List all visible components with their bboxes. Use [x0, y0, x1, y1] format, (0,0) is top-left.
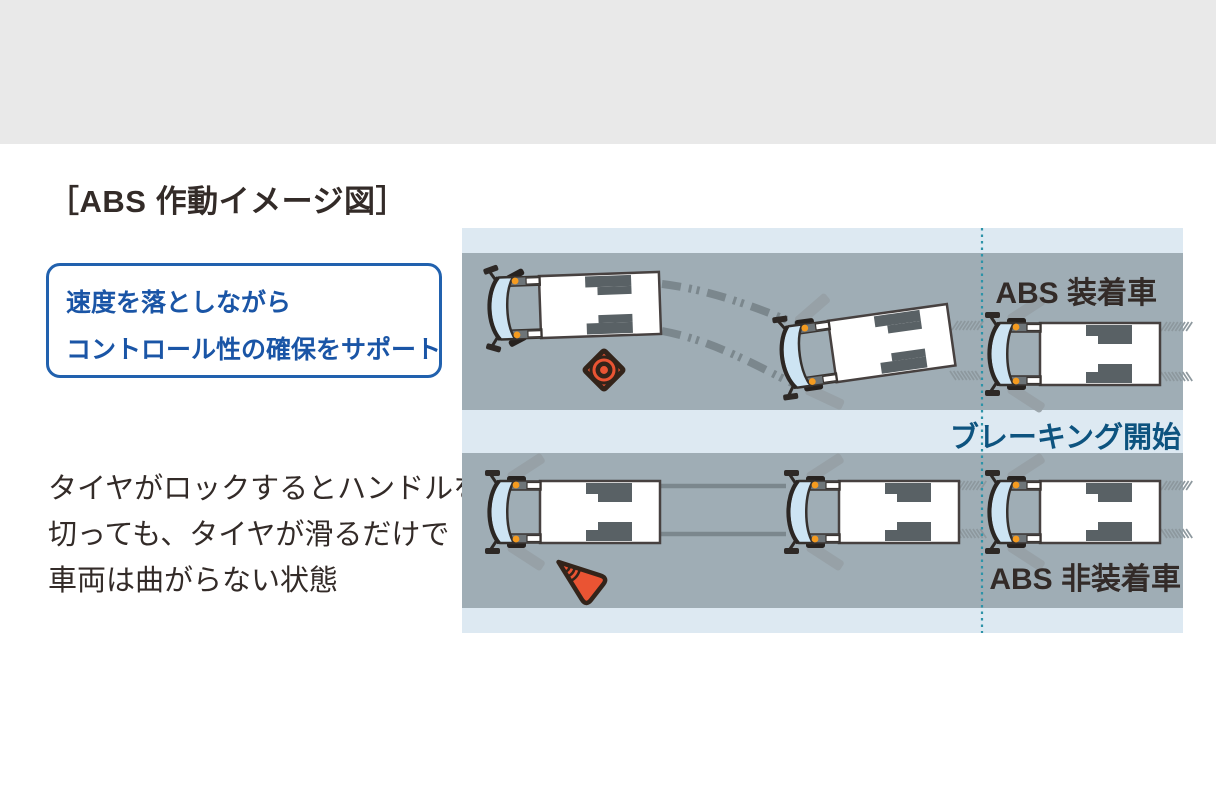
callout-box: 速度を落としながら コントロール性の確保をサポート — [46, 263, 442, 378]
callout-line-2: コントロール性の確保をサポート — [66, 330, 441, 366]
label-abs-equipped: ABS 装着車 — [995, 268, 1157, 312]
description-line-3: 車両は曲がらない状態 — [48, 558, 482, 604]
callout-line-1: 速度を落としながら — [66, 283, 291, 319]
label-braking-start: ブレーキング開始 — [950, 414, 1181, 456]
page-title: ［ABS 作動イメージ図］ — [48, 176, 407, 221]
header-band — [0, 0, 1216, 144]
abs-comparison-diagram: ABS 装着車 ブレーキング開始 ABS 非装着車 — [462, 228, 1183, 633]
road-shoulder-top — [462, 228, 1183, 253]
road-shoulder-bottom — [462, 608, 1183, 633]
label-abs-not-equipped: ABS 非装着車 — [989, 554, 1181, 598]
page: ［ABS 作動イメージ図］ 速度を落としながら コントロール性の確保をサポート … — [0, 0, 1216, 810]
description-line-2: 切っても、タイヤが滑るだけで — [48, 512, 482, 558]
description-text: タイヤがロックするとハンドルを 切っても、タイヤが滑るだけで 車両は曲がらない状… — [48, 466, 482, 604]
description-line-1: タイヤがロックするとハンドルを — [48, 466, 482, 512]
